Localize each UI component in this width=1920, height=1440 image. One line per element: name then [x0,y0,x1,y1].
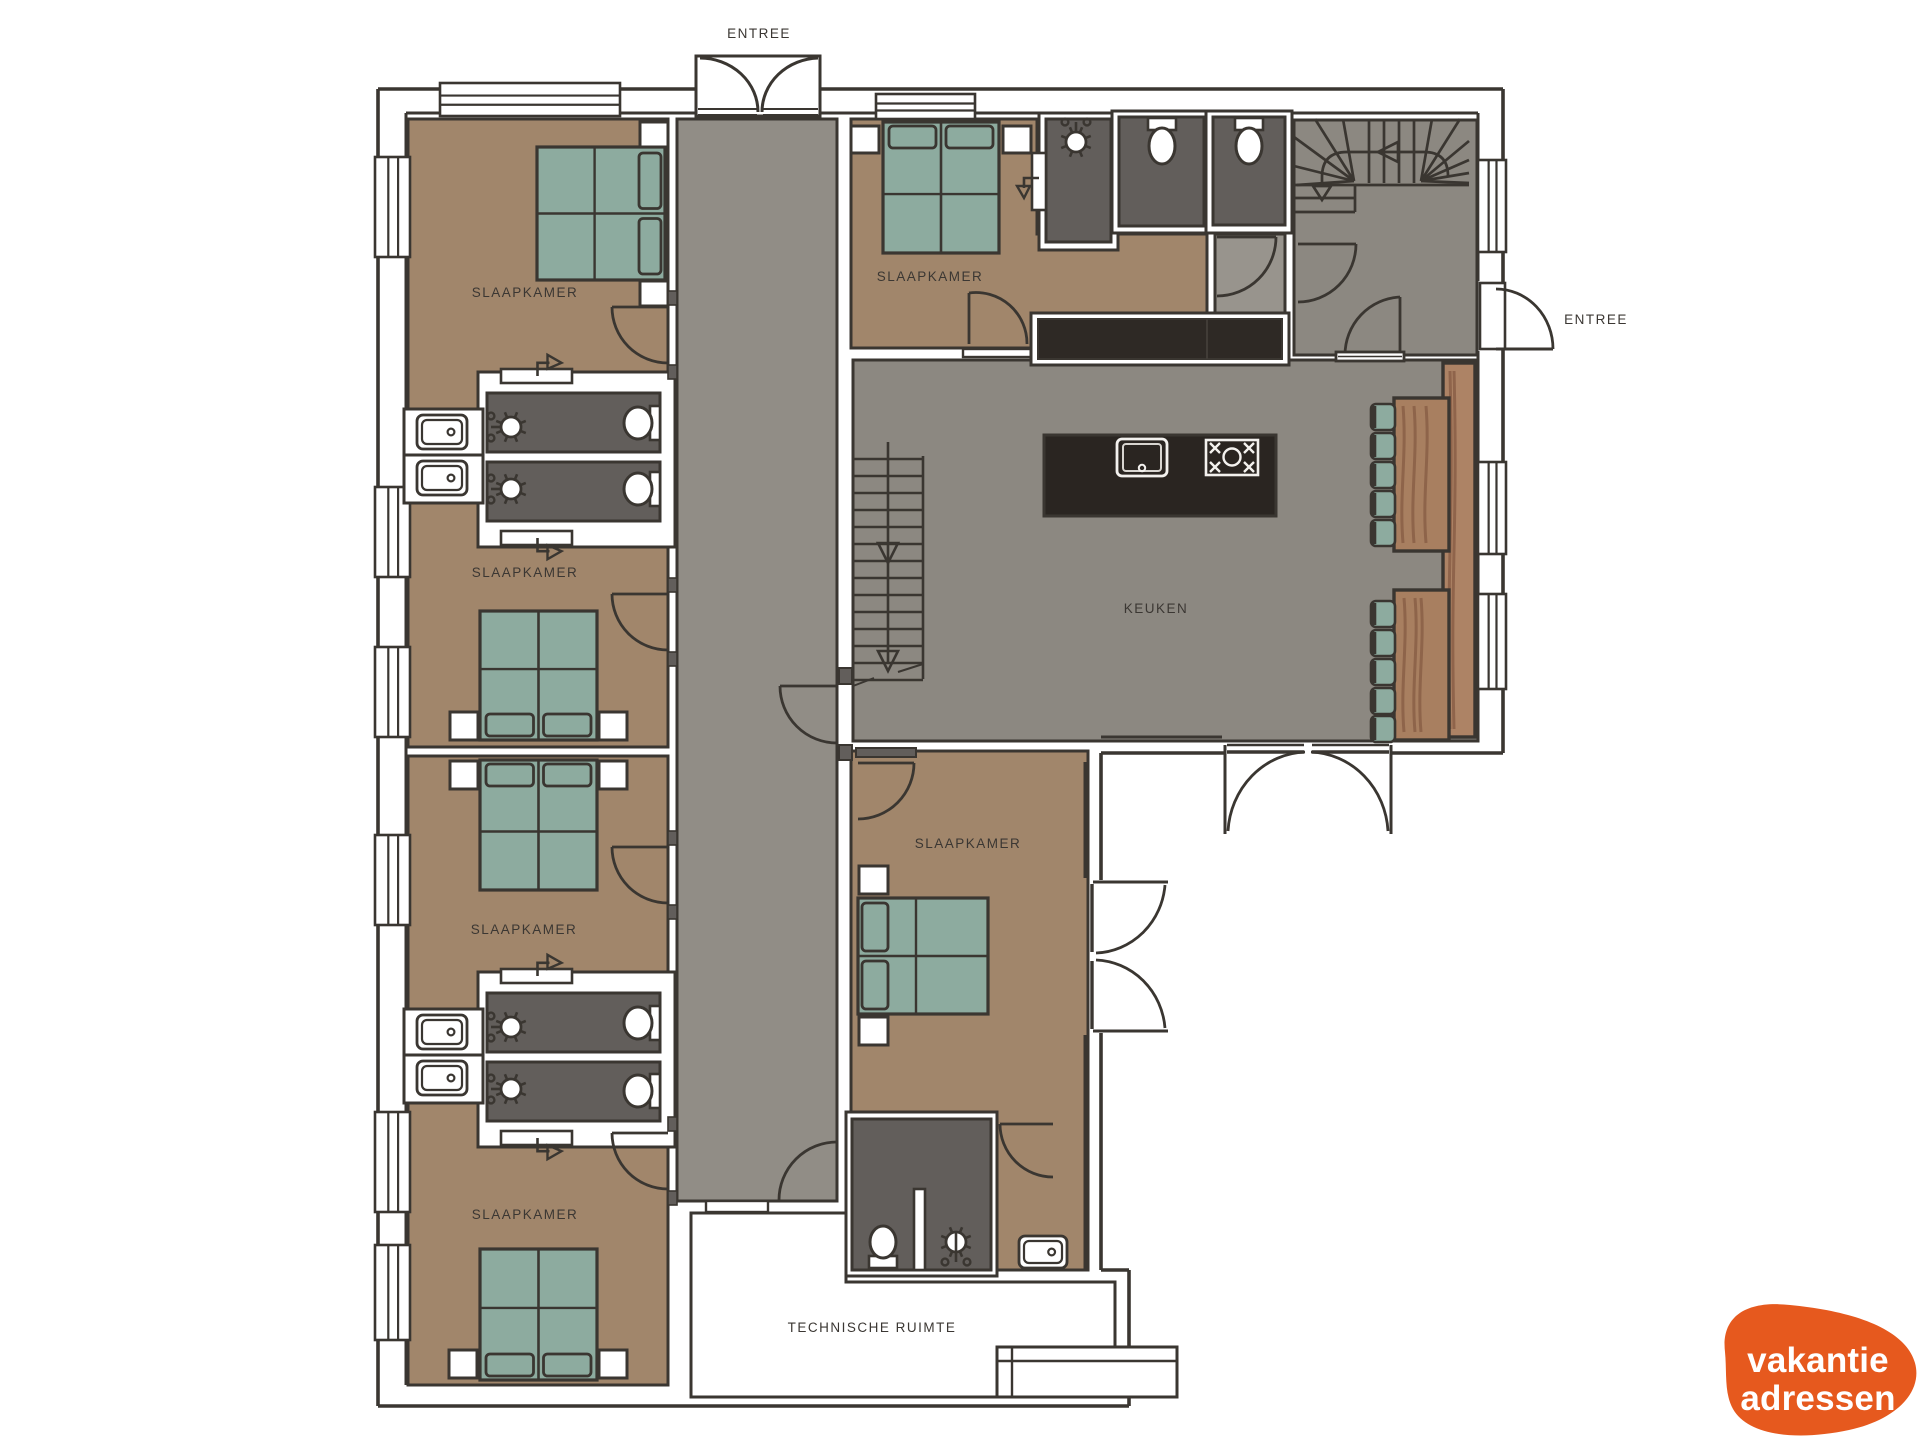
svg-text:vakantie: vakantie [1747,1341,1889,1380]
svg-text:SLAAPKAMER: SLAAPKAMER [915,836,1022,851]
svg-text:adressen: adressen [1740,1379,1895,1418]
svg-text:TECHNISCHE RUIMTE: TECHNISCHE RUIMTE [788,1320,957,1335]
svg-text:ENTREE: ENTREE [727,26,791,41]
svg-text:SLAAPKAMER: SLAAPKAMER [471,922,578,937]
svg-text:SLAAPKAMER: SLAAPKAMER [472,285,579,300]
svg-text:KEUKEN: KEUKEN [1124,601,1189,616]
svg-text:SLAAPKAMER: SLAAPKAMER [472,565,579,580]
svg-text:SLAAPKAMER: SLAAPKAMER [472,1207,579,1222]
svg-text:ENTREE: ENTREE [1564,312,1628,327]
svg-text:SLAAPKAMER: SLAAPKAMER [877,269,984,284]
